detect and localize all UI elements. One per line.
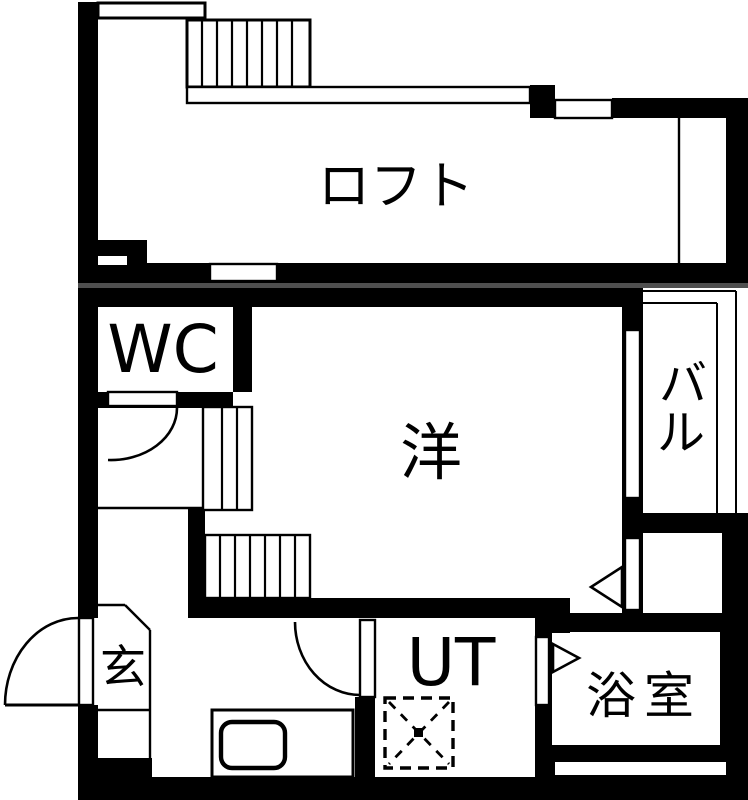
room-label-western: 洋 [400,416,462,489]
closet-door-leaf [625,538,640,610]
bath-door-leaf [536,637,549,705]
loft-window [210,264,277,281]
kitchen-counter [212,710,353,777]
floor-plan-canvas: ロフト [0,0,748,800]
wall-segment [726,100,748,283]
room-label-loft: ロフト [318,157,474,217]
wall-segment [78,288,643,307]
loft-window-slit [98,256,127,265]
balcony-sliding-window [625,330,640,498]
washer-pan-icon [385,698,453,768]
wall-segment [78,758,152,800]
wall-segment [78,263,748,283]
wall-segment [355,697,375,780]
wall-segment [78,2,98,283]
room-label-utility: UT [407,624,496,701]
wall-segment [78,288,98,618]
wall-segment [643,513,748,533]
floor-plan: ロフト [0,0,748,800]
room-label-balcony-1: バ [659,356,707,412]
room-label-balcony-2: ル [657,405,705,461]
wall-segment [552,613,748,632]
wall-segment [78,705,98,758]
stairs-upper-run-icon [203,407,252,510]
level-divider [78,283,748,288]
room-label-entrance: 玄 [100,640,146,694]
loft-window [555,100,612,118]
kitchen-sink-icon [221,722,285,768]
wall-segment [152,777,748,800]
wall-segment [233,307,252,392]
wall-segment [722,533,748,632]
loft-landing [187,87,530,103]
bath-window [555,762,726,775]
wall-segment [188,598,552,618]
room-label-wc: WC [107,311,218,388]
wall-segment [530,85,555,118]
stairs-lower-run-icon [205,535,310,598]
loft-top-ledge [98,3,205,18]
room-label-bathroom: 浴室 [586,667,702,725]
loft-stairs-icon [187,20,310,87]
